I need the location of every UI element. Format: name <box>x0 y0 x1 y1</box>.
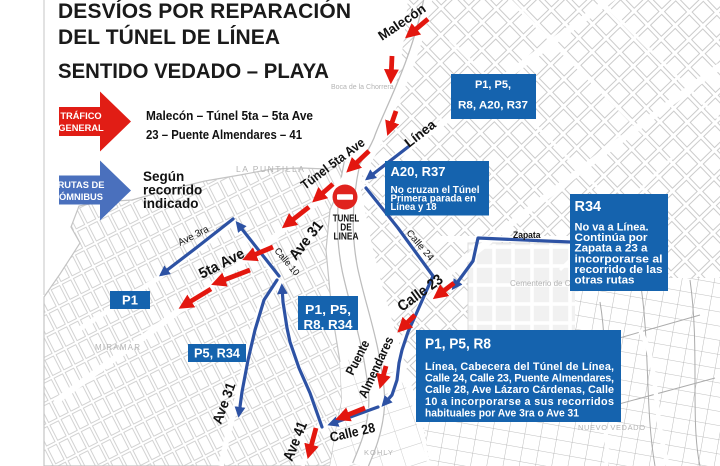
svg-text:R8, R34: R8, R34 <box>304 317 354 332</box>
svg-text:SENTIDO VEDADO – PLAYA: SENTIDO VEDADO – PLAYA <box>58 60 329 83</box>
svg-text:P5, R34: P5, R34 <box>194 347 240 361</box>
svg-text:Boca de la Chorrera: Boca de la Chorrera <box>331 84 394 91</box>
svg-text:P1, P5,: P1, P5, <box>475 79 511 91</box>
svg-text:P1: P1 <box>122 293 138 308</box>
svg-text:DEL TÚNEL DE LÍNEA: DEL TÚNEL DE LÍNEA <box>58 25 280 49</box>
svg-text:Línea y 18: Línea y 18 <box>391 201 437 213</box>
svg-text:23 – Puente Almendares – 41: 23 – Puente Almendares – 41 <box>146 127 302 142</box>
svg-text:habituales por Ave 3ra o Ave 3: habituales por Ave 3ra o Ave 31 <box>425 407 579 419</box>
svg-text:LA PUNTILLA: LA PUNTILLA <box>236 164 305 174</box>
svg-text:R34: R34 <box>575 199 602 215</box>
svg-text:DESVÍOS POR REPARACIÓN: DESVÍOS POR REPARACIÓN <box>58 0 351 23</box>
svg-text:Calle 24, Calle 23, Puente Alm: Calle 24, Calle 23, Puente Almendares, <box>425 373 614 385</box>
svg-text:ÓMNIBUS: ÓMNIBUS <box>59 191 103 202</box>
svg-text:NUEVO VEDADO: NUEVO VEDADO <box>578 423 646 432</box>
svg-text:KOHLY: KOHLY <box>364 448 394 457</box>
svg-text:R8, A20, R37: R8, A20, R37 <box>458 100 528 112</box>
svg-text:LINEA: LINEA <box>334 232 359 243</box>
svg-text:MIRAMAR: MIRAMAR <box>95 343 141 352</box>
svg-text:GENERAL: GENERAL <box>58 123 104 133</box>
svg-text:P1, P5,: P1, P5, <box>305 302 351 317</box>
svg-text:A20, R37: A20, R37 <box>391 165 446 179</box>
svg-text:10 a incorporarse a sus recorr: 10 a incorporarse a sus recorridos <box>425 396 614 408</box>
svg-text:P1, P5, R8: P1, P5, R8 <box>425 337 491 353</box>
svg-text:Malecón – Túnel 5ta – 5ta Ave: Malecón – Túnel 5ta – 5ta Ave <box>146 108 313 123</box>
svg-text:Zapata: Zapata <box>513 230 541 241</box>
svg-text:Cementerio de Col: Cementerio de Col <box>510 279 577 288</box>
svg-text:Calle 28, Ave Lázaro Cárdenas: Calle 28, Ave Lázaro Cárdenas, Calle <box>425 384 614 396</box>
svg-text:indicado: indicado <box>143 196 199 211</box>
svg-text:Línea, Cabecera del Túnel de L: Línea, Cabecera del Túnel de Línea, <box>425 361 614 373</box>
svg-text:TRÁFICO: TRÁFICO <box>60 111 101 121</box>
svg-text:RUTAS DE: RUTAS DE <box>58 180 105 190</box>
svg-text:otras rutas: otras rutas <box>575 275 635 287</box>
